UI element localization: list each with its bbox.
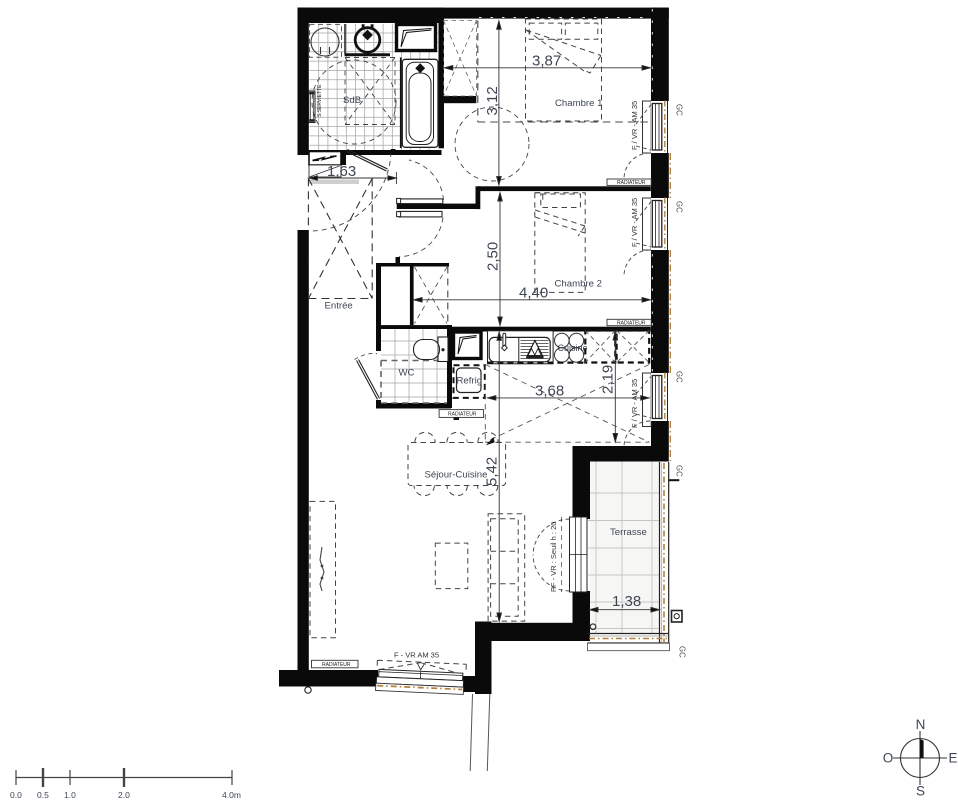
svg-text:O: O — [883, 751, 894, 766]
svg-text:4.0m: 4.0m — [222, 790, 241, 800]
svg-text:1.0: 1.0 — [64, 790, 76, 800]
svg-text:F / VR - AM 35: F / VR - AM 35 — [630, 101, 639, 150]
svg-text:GC: GC — [678, 646, 687, 658]
svg-text:GC: GC — [675, 465, 684, 477]
svg-text:4,40: 4,40 — [519, 285, 548, 302]
svg-text:3,12: 3,12 — [484, 86, 501, 115]
svg-text:3,68: 3,68 — [535, 383, 564, 400]
svg-text:SdB: SdB — [343, 95, 361, 106]
svg-text:Chambre 2: Chambre 2 — [555, 279, 602, 290]
svg-text:RADIATEUR: RADIATEUR — [617, 180, 646, 186]
svg-text:RADIATEUR: RADIATEUR — [448, 412, 477, 418]
svg-text:N: N — [916, 717, 926, 732]
svg-text:2.0: 2.0 — [118, 790, 130, 800]
svg-text:GC: GC — [675, 371, 684, 383]
svg-text:0.5: 0.5 — [37, 790, 49, 800]
svg-text:GC: GC — [675, 201, 684, 213]
svg-text:S.SERVIETTE: S.SERVIETTE — [317, 84, 323, 117]
svg-text:Chambre 1: Chambre 1 — [555, 98, 602, 109]
svg-text:0.0: 0.0 — [10, 790, 22, 800]
svg-text:2,50: 2,50 — [485, 242, 502, 271]
svg-text:Terrasse: Terrasse — [610, 527, 647, 538]
svg-text:E: E — [948, 751, 957, 766]
svg-text:3,87: 3,87 — [532, 53, 561, 70]
svg-text:PF - VR : Seuil h : 20: PF - VR : Seuil h : 20 — [549, 522, 558, 592]
svg-text:F / VR - AM 35: F / VR - AM 35 — [630, 198, 639, 247]
svg-text:Refrig: Refrig — [457, 376, 483, 387]
svg-text:WC: WC — [399, 368, 415, 379]
svg-text:1,63: 1,63 — [327, 163, 356, 180]
svg-text:GC: GC — [675, 104, 684, 116]
svg-text:Séjour-Cuisine: Séjour-Cuisine — [425, 469, 488, 480]
svg-text:Entrée: Entrée — [325, 301, 353, 312]
svg-text:2,19: 2,19 — [600, 365, 617, 394]
svg-text:RADIATEUR: RADIATEUR — [617, 321, 646, 327]
svg-text:S: S — [916, 784, 925, 799]
svg-text:F - VR AM 35: F - VR AM 35 — [394, 651, 439, 660]
svg-text:F / VR - AM 35: F / VR - AM 35 — [630, 379, 639, 428]
svg-text:RADIATEUR: RADIATEUR — [322, 662, 351, 668]
svg-text:5,42: 5,42 — [484, 457, 501, 486]
svg-text:1,38: 1,38 — [612, 593, 641, 610]
